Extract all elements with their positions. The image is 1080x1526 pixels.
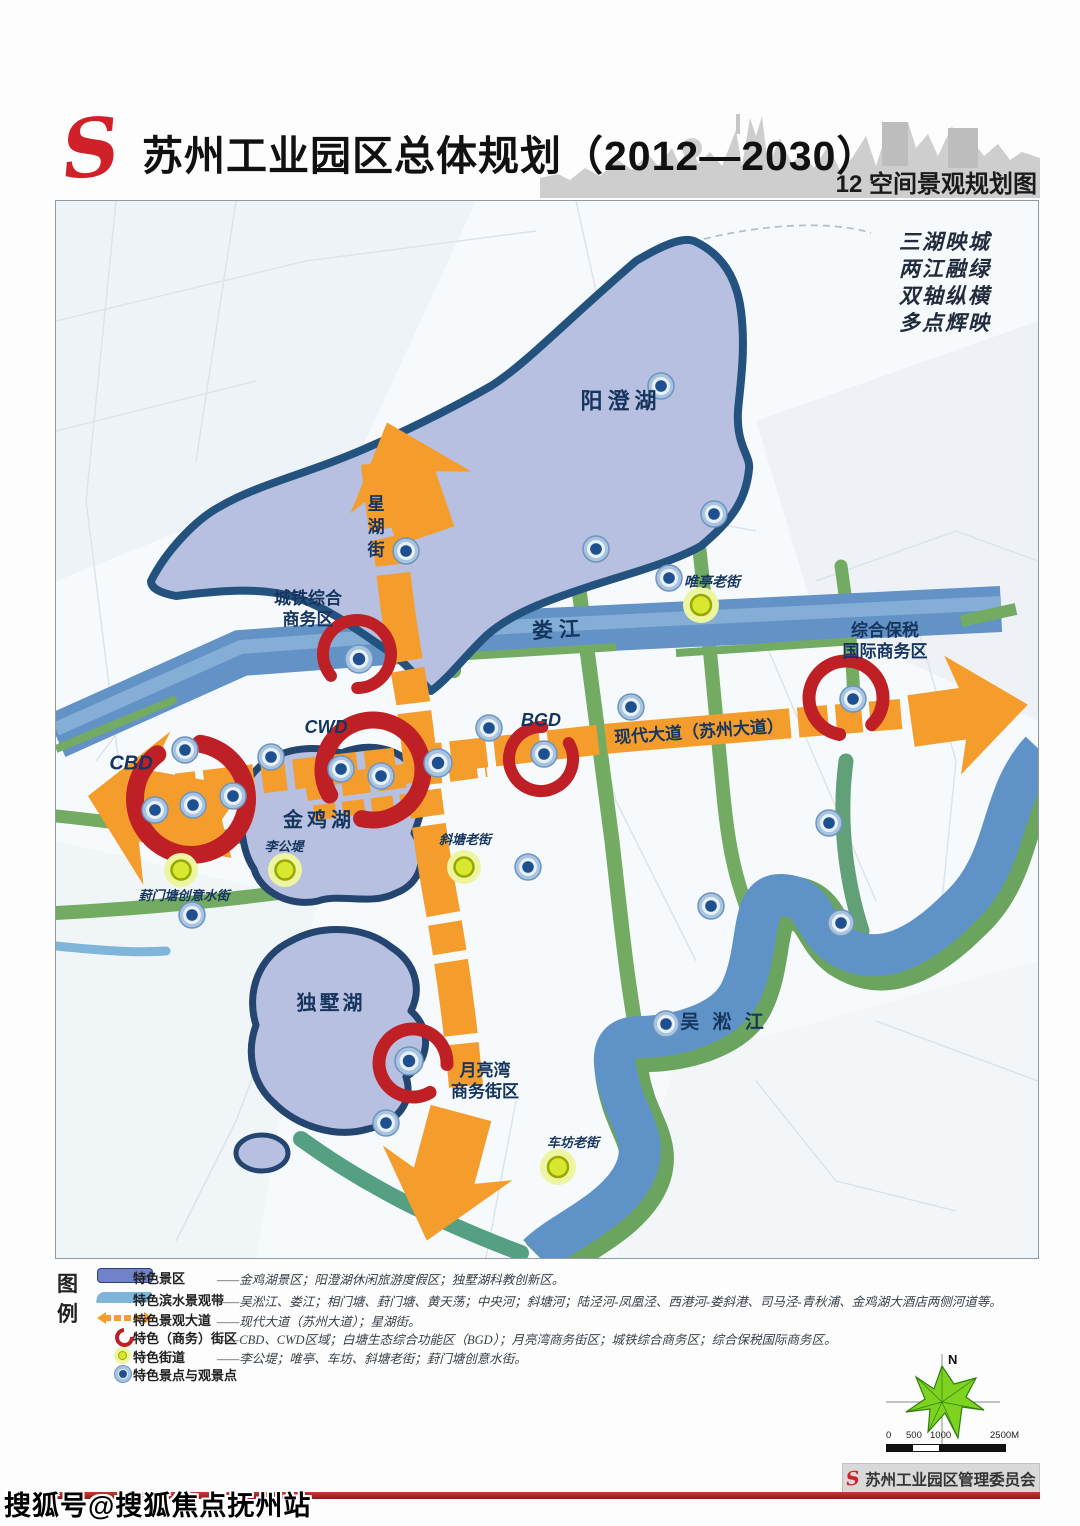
scenic-point-marker [179, 902, 205, 928]
scenic-point-marker [816, 810, 842, 836]
legend-row-waterfront: 特色滨水景观带 ——吴淞江、娄江；相门塘、葑门塘、黄天荡；中央河；斜塘河；陆泾河… [55, 1290, 1037, 1307]
xinghu-street-label: 星湖街 [363, 495, 384, 564]
yangcheng-lake-label: 阳澄湖 [580, 387, 661, 415]
sheet-subtitle: 12 空间景观规划图 [0, 164, 1037, 199]
scenic-point-marker [373, 1110, 399, 1136]
bgd-label: BGD [521, 709, 561, 732]
dushu-lake-south-pond [236, 1135, 288, 1171]
scenic-point-marker [220, 783, 246, 809]
street-marker-xietang [447, 850, 481, 884]
yueliangwan-label: 月亮湾 商务街区 [451, 1060, 519, 1103]
planning-map: 三湖映城 两江融绿 双轴纵横 多点辉映 阳澄湖 星湖街 城铁综合 商务区 娄 江… [55, 200, 1039, 1259]
scenic-point-marker [515, 854, 541, 880]
legend-term: 特色景点与观景点 [133, 1365, 237, 1384]
scale-tick: 1000 [930, 1430, 951, 1441]
scenic-point-marker [345, 645, 373, 673]
scenic-point-marker [395, 1047, 423, 1075]
scale-tick: 2500M [990, 1430, 1019, 1441]
scenic-point-marker [828, 910, 854, 936]
xietang-street-label: 斜塘老街 [439, 832, 491, 848]
street-marker-ligongdi [268, 853, 302, 887]
scenic-point-marker [142, 797, 168, 823]
legend-term: 特色街道 [133, 1347, 185, 1366]
scenic-point-marker [701, 501, 727, 527]
jinji-lake-label: 金鸡湖 [283, 809, 355, 834]
cwd-label: CWD [305, 716, 348, 739]
legend-row-business-district: 特色（商务）街区 ——CBD、CWD区域；白塘生态综合功能区（BGD）；月亮湾商… [55, 1328, 1037, 1345]
scenic-point-marker [424, 749, 452, 777]
chengtie-hub-label: 城铁综合 商务区 [274, 588, 342, 631]
wusong-river-label: 吴 淞 江 [680, 1011, 768, 1035]
street-marker-chefang [540, 1149, 576, 1185]
street-marker-weiting [683, 587, 719, 623]
scale-tick: 500 [906, 1430, 922, 1441]
weiting-street-label: 唯亭老街 [684, 573, 740, 591]
scenic-point-marker [393, 538, 419, 564]
park-logo-small-icon: S [845, 1467, 861, 1490]
authority-stamp: S 苏州工业园区管理委员会 [842, 1463, 1040, 1494]
lou-river-label: 娄 江 [531, 617, 580, 646]
scenic-point-marker [368, 763, 394, 789]
legend-term: 特色景观大道 [133, 1310, 211, 1329]
scenic-point-marker [258, 744, 284, 770]
scenic-point-marker [583, 536, 609, 562]
scale-bar: 0 500 1000 2500M [886, 1430, 1026, 1452]
scenic-point-marker [531, 741, 557, 767]
street-marker-fengmentang [164, 853, 198, 887]
scenic-point-marker [180, 792, 206, 818]
planning-motto: 三湖映城 两江融绿 双轴纵横 多点辉映 [899, 229, 991, 337]
watermark: 搜狐号@搜狐焦点抚州站 [4, 1484, 311, 1523]
scenic-point-marker [840, 686, 866, 712]
chefang-street-label: 车坊老街 [547, 1135, 599, 1151]
poster-page: S 苏州工业园区总体规划（2012—2030） 12 空间景观规划图 [0, 0, 1080, 1526]
scenic-point-marker [656, 565, 682, 591]
authority-name: 苏州工业园区管理委员会 [865, 1468, 1036, 1490]
legend-term: 特色滨水景观带 [133, 1290, 224, 1309]
planning-motto-text: 三湖映城 两江融绿 双轴纵横 多点辉映 [899, 231, 991, 335]
scenic-point-marker [172, 737, 198, 763]
dushu-lake-label: 独墅湖 [297, 992, 366, 1017]
fengmentang-street-label: 葑门塘创意水街 [138, 888, 229, 904]
scenic-point-marker [653, 1011, 679, 1037]
legend-row-scenic-area: 特色景区 ——金鸡湖景区；阳澄湖休闲旅游度假区；独墅湖科教创新区。 [55, 1268, 1037, 1285]
scale-bar-segments [886, 1444, 1006, 1452]
legend-desc: ——吴淞江、娄江；相门塘、葑门塘、黄天荡；中央河；斜塘河；陆泾河-凤凰泾、西港河… [217, 1291, 1002, 1310]
legend-row-avenue: 特色景观大道 ——现代大道（苏州大道）；星湖街。 [55, 1310, 1037, 1327]
scenic-point-marker [698, 893, 724, 919]
north-label: N [948, 1352, 957, 1367]
cbd-label: CBD [109, 752, 152, 777]
scenic-point-marker [476, 715, 502, 741]
scale-tick: 0 [886, 1430, 891, 1441]
scale-tick-labels: 0 500 1000 2500M [886, 1430, 1026, 1442]
legend-desc: ——金鸡湖景区；阳澄湖休闲旅游度假区；独墅湖科教创新区。 [217, 1269, 564, 1288]
legend-desc: ——CBD、CWD区域；白塘生态综合功能区（BGD）；月亮湾商务街区；城铁综合商… [217, 1329, 836, 1348]
ligongdi-label: 李公堤 [264, 839, 303, 855]
scenic-point-marker [618, 694, 644, 720]
zonghe-baoshui-label: 综合保税 国际商务区 [843, 620, 928, 663]
legend-term: 特色景区 [133, 1268, 185, 1287]
scenic-point-marker [328, 756, 354, 782]
